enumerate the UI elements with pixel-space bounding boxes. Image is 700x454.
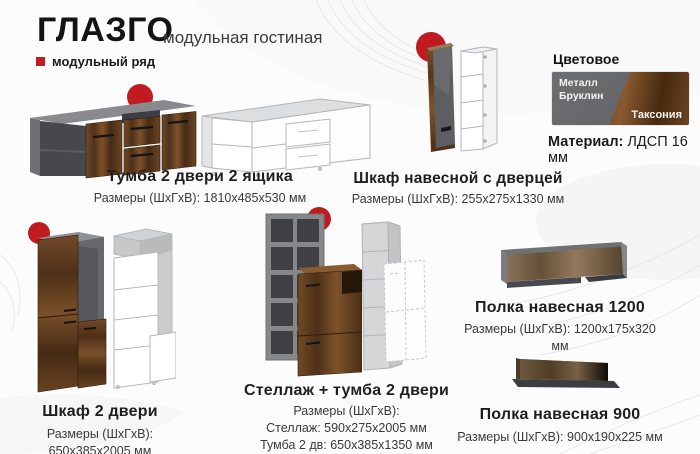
product-dims: Размеры (ШхГхВ): 900х190х225 мм	[455, 429, 665, 446]
product-dims: Размеры (ШхГхВ): 650х385х2005 мм	[10, 426, 190, 454]
tv-stand-outline-illustration	[200, 94, 372, 178]
product-title: Полка навесная 1200	[455, 299, 665, 317]
product-dims-line: Стеллаж: 590х275х2005 мм	[234, 420, 459, 437]
product-title: Тумба 2 двери 2 ящика	[30, 168, 370, 186]
catalog-page: ГЛАЗГО модульная гостиная модульный ряд …	[0, 0, 700, 454]
wall-shelf-900-photo-illustration	[506, 353, 624, 397]
series-label: модульный ряд	[52, 54, 155, 69]
product-title: Шкаф навесной с дверцей	[348, 170, 568, 188]
material-label: Материал:	[548, 134, 623, 150]
product-dims-line: Тумба 2 дв: 650х385х1350 мм	[234, 437, 459, 454]
product-dims: Размеры (ШхГхВ): 1810х485х530 мм	[30, 190, 370, 207]
product-title: Шкаф 2 двери	[10, 403, 190, 421]
shelving-unit-photo-illustration	[264, 212, 362, 378]
cabinet-2-doors-outline-illustration	[110, 224, 176, 390]
series-badge: модульный ряд	[36, 54, 155, 69]
cabinet-2-doors-photo-illustration	[32, 226, 110, 394]
wall-cabinet-outline-illustration	[457, 41, 503, 155]
product-dims: Размеры (ШхГхВ): 255х275х1330 мм	[348, 191, 568, 208]
wall-cabinet-photo-illustration	[421, 40, 461, 154]
shelving-unit-outline-illustration	[360, 218, 430, 378]
finish-swatch: Металл Бруклин Таксония	[552, 72, 689, 125]
product-dims: Размеры (ШхГхВ): 1200х175х320 мм	[455, 321, 665, 355]
red-square-icon	[36, 57, 45, 66]
product-title: Полка навесная 900	[455, 406, 665, 424]
swatch-metal-label: Металл Бруклин	[559, 77, 621, 103]
product-dims-block: Размеры (ШхГхВ): Стеллаж: 590х275х2005 м…	[234, 403, 459, 454]
product-title: Стеллаж + тумба 2 двери	[234, 382, 459, 400]
page-subtitle: модульная гостиная	[163, 28, 322, 48]
product-dims-line: Размеры (ШхГхВ):	[234, 403, 459, 420]
swatch-wood-label: Таксония	[631, 109, 682, 121]
page-title: ГЛАЗГО	[37, 11, 173, 50]
wall-shelf-1200-photo-illustration	[497, 240, 631, 290]
material-line: Материал: ЛДСП 16 мм	[548, 134, 700, 166]
